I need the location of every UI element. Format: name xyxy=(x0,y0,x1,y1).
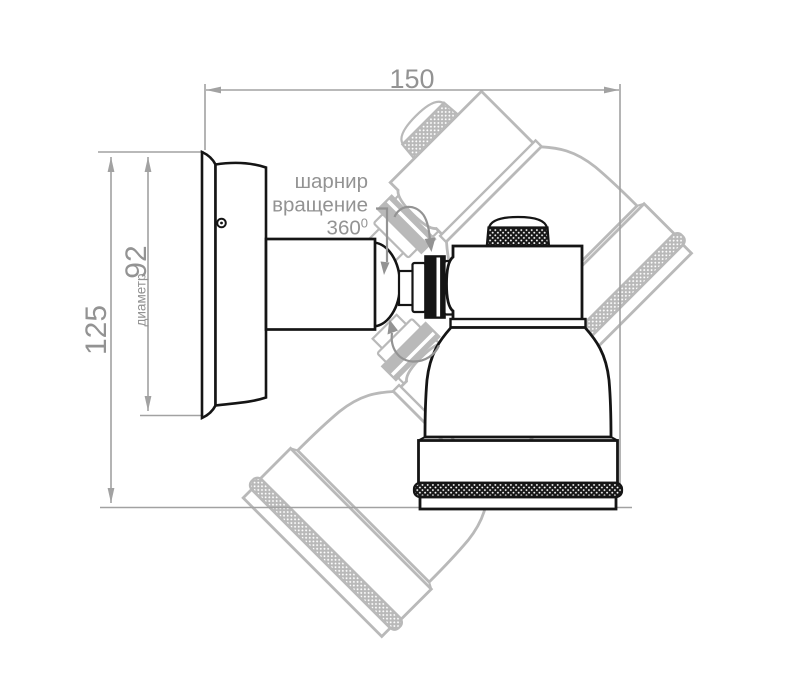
technical-drawing-page: 150 125 92 диаметр шарнир вращение 3600 xyxy=(0,0,800,691)
hinge-note-angle: 3600 xyxy=(327,216,368,240)
arrow-width-right xyxy=(604,87,619,94)
hinge-note-line2: вращение xyxy=(272,194,368,217)
dim-height-label: 125 xyxy=(80,305,113,355)
arrow-width-left xyxy=(206,87,221,94)
arrow-height-top xyxy=(108,157,115,172)
dim-diameter-caption: диаметр xyxy=(134,274,149,327)
mounting-arm xyxy=(266,239,375,330)
wall-plate-flange xyxy=(202,152,216,418)
lamp-technical-drawing: 150 125 92 диаметр шарнир вращение 3600 xyxy=(0,0,800,691)
mount-screw-center xyxy=(220,222,223,225)
dim-width-label: 150 xyxy=(389,64,434,94)
wall-plate-body xyxy=(216,163,267,406)
arrow-diameter-bottom xyxy=(145,396,152,411)
hinge-note-line1: шарнир xyxy=(295,170,368,193)
arrow-diameter-top xyxy=(145,157,152,172)
arrow-height-bottom xyxy=(108,488,115,503)
hinge-angle-value: 360 xyxy=(327,217,361,240)
hinge-angle-superscript: 0 xyxy=(361,216,368,231)
